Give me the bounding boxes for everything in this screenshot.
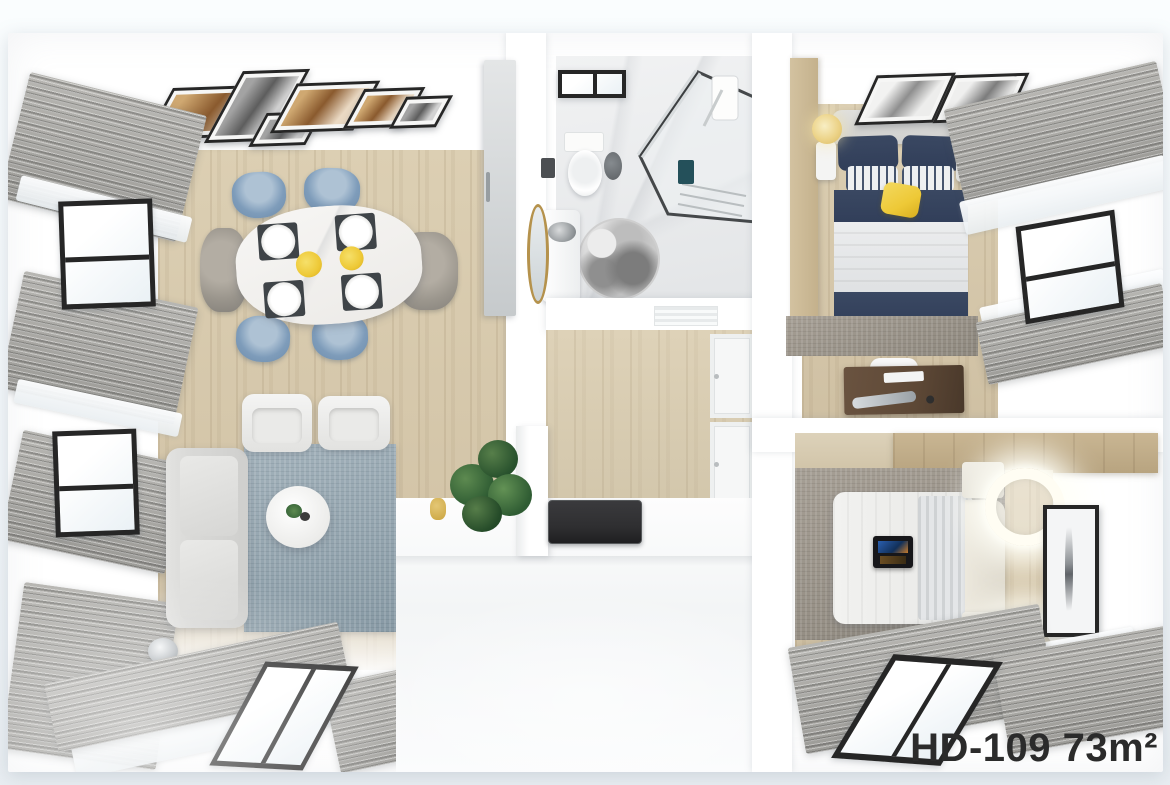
- cabinet-knob: [714, 374, 719, 379]
- living-window-left-1: [58, 198, 156, 309]
- bathroom-sink: [548, 222, 576, 242]
- desk-metal-item: [852, 390, 917, 409]
- floorplan: HD-109 73m²: [8, 33, 1163, 772]
- window-mullion: [59, 484, 133, 492]
- yellow-centerpiece-1: [295, 251, 323, 279]
- window-mullion: [1026, 261, 1115, 282]
- armchair-1: [242, 394, 312, 452]
- window-mullion: [593, 74, 597, 94]
- armchair-2: [318, 396, 390, 450]
- sofa-cushion: [180, 540, 238, 620]
- plant-foliage: [478, 440, 518, 478]
- desk-paper: [884, 371, 924, 383]
- island-counter-edge: [396, 556, 760, 566]
- potted-plant: [444, 434, 536, 534]
- master-window: [1016, 210, 1125, 325]
- master-yellow-throw: [880, 181, 923, 219]
- laptop-screen: [878, 541, 908, 553]
- desk-decor: [926, 395, 934, 403]
- armchair-seat: [252, 408, 302, 444]
- ceiling-vent: [654, 306, 718, 326]
- cooktop: [548, 500, 642, 544]
- master-duvet-white-band: [834, 222, 968, 294]
- dining-chair-blue-3: [235, 315, 291, 364]
- cabinet-door: [710, 422, 754, 506]
- round-gold-mirror: [527, 204, 549, 304]
- cabinet-knob: [714, 462, 719, 467]
- art-feather-motif: [1065, 517, 1073, 621]
- wall-bathroom-kitchen: [546, 298, 760, 332]
- sofa-cushion: [180, 456, 238, 536]
- wall-middle-right: [752, 33, 792, 772]
- coffee-table: [266, 486, 330, 548]
- art-image: [400, 102, 442, 121]
- toilet-tank: [564, 132, 604, 152]
- bed2-striped-blanket: [918, 496, 968, 620]
- bed2-laptop: [873, 536, 913, 568]
- art-image: [864, 80, 945, 118]
- armchair-seat: [329, 408, 379, 442]
- floorplan-render-stage: HD-109 73m²: [0, 0, 1170, 785]
- bathroom-window: [558, 70, 626, 98]
- coffee-table-decor: [300, 512, 310, 521]
- plant-foliage: [462, 496, 502, 532]
- bed2-wardrobe-right: [893, 433, 1158, 473]
- unit-label: HD-109 73m²: [898, 726, 1158, 772]
- laptop-keyboard: [880, 556, 906, 564]
- master-nightstand-left: [816, 142, 836, 180]
- shower-enclosure: [634, 64, 762, 238]
- bed2-wall-art: [1043, 505, 1099, 637]
- sofa: [166, 448, 248, 628]
- master-wardrobe: [790, 58, 818, 324]
- master-lamp-left: [812, 114, 842, 144]
- living-window-left-2: [52, 429, 140, 538]
- toilet-bowl: [568, 150, 602, 196]
- bathroom-wall-niche: [541, 158, 555, 178]
- window-mullion: [65, 254, 149, 262]
- window-mullion: [260, 669, 316, 763]
- door-handle: [486, 172, 490, 202]
- bathroom-bin: [604, 152, 622, 180]
- bathroom-door: [484, 60, 516, 316]
- master-rug: [786, 316, 978, 356]
- kitchen-cabinets: [710, 334, 754, 506]
- yellow-centerpiece-2: [339, 246, 365, 272]
- master-dressing-desk: [844, 365, 965, 415]
- cabinet-door: [710, 334, 754, 418]
- bed2-wardrobe-left: [795, 433, 895, 473]
